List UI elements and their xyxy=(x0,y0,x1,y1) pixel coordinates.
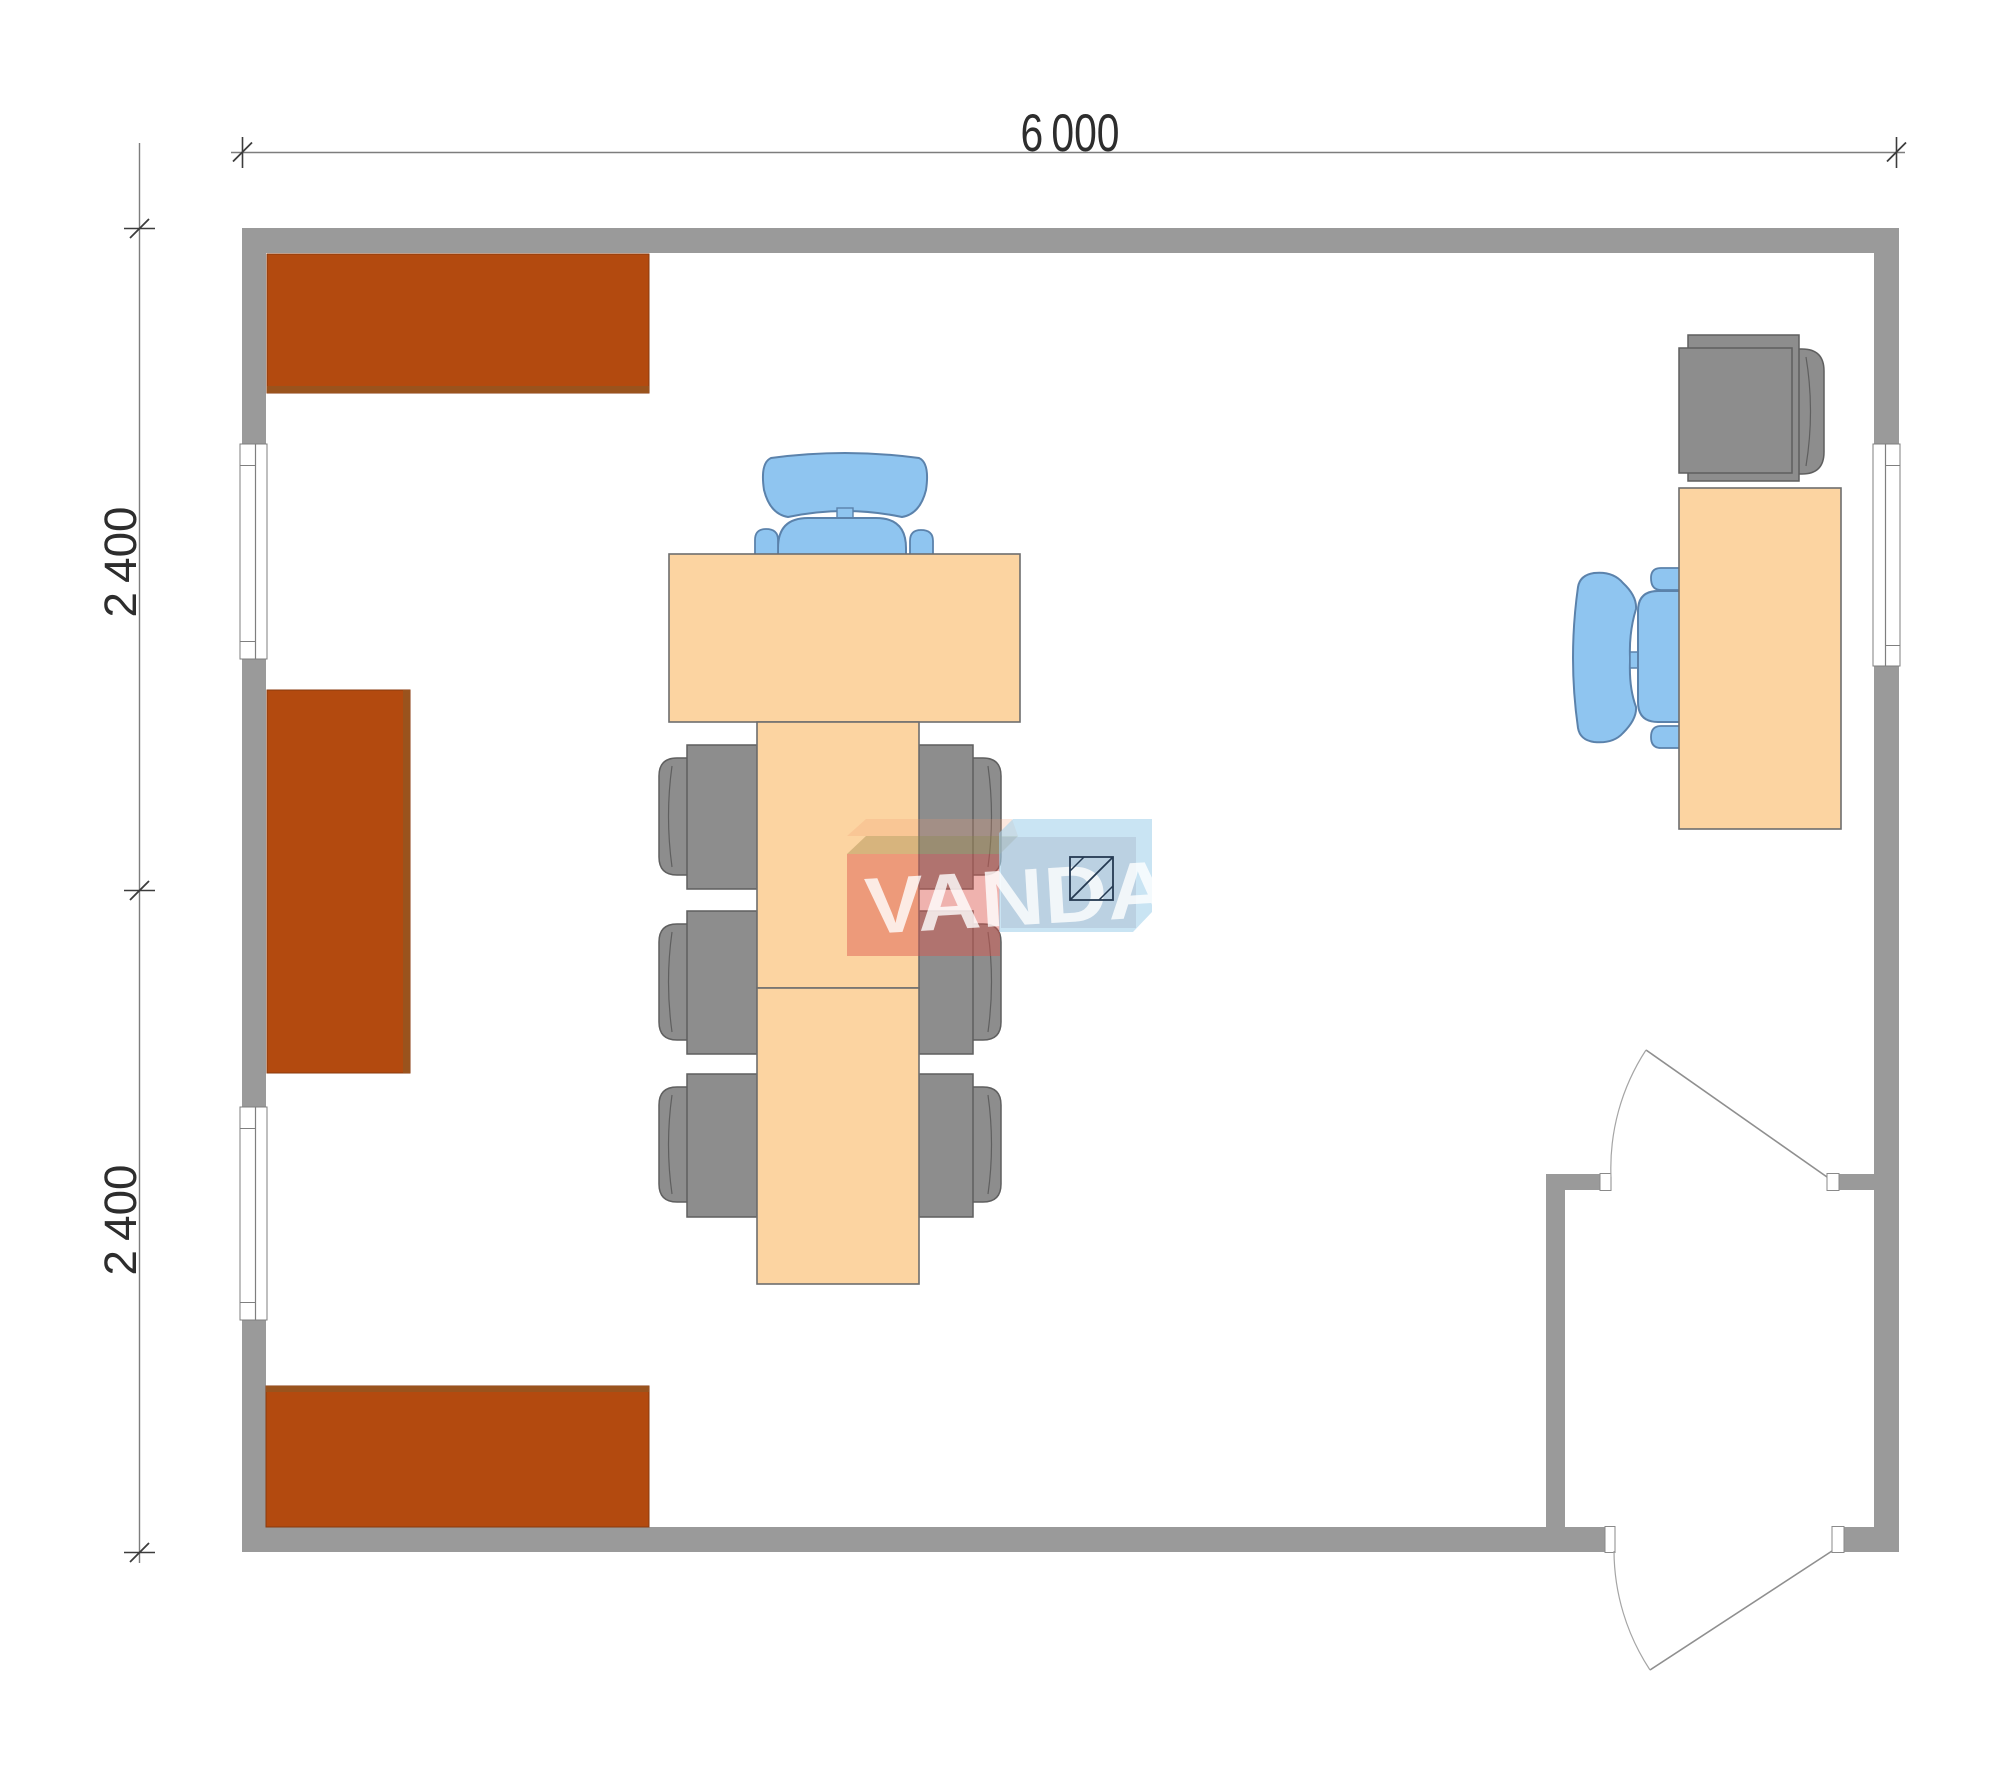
svg-text:2 400: 2 400 xyxy=(95,1165,146,1276)
svg-text:2 400: 2 400 xyxy=(95,507,146,618)
svg-text:6 000: 6 000 xyxy=(1021,104,1120,163)
svg-text:VANDA: VANDA xyxy=(862,844,1173,951)
